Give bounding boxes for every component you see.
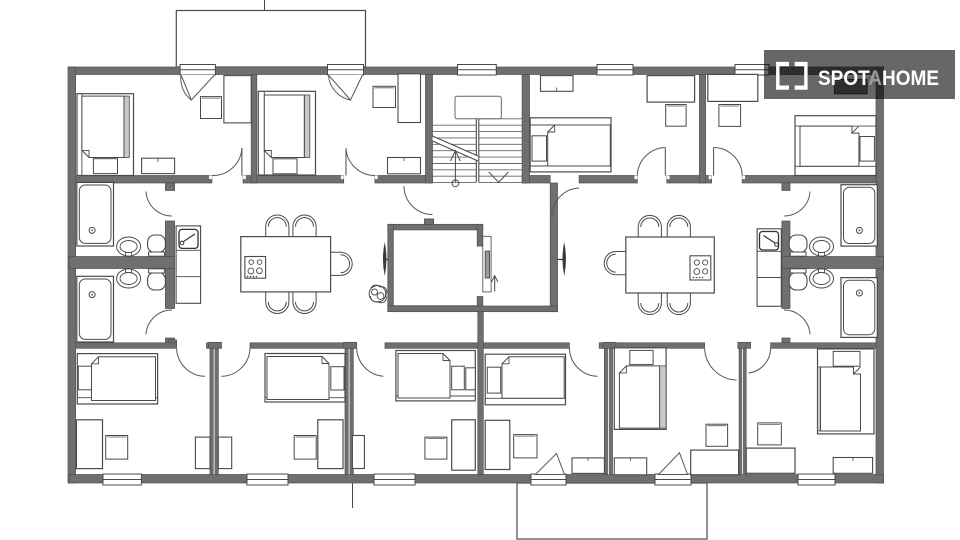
svg-text:SPOTAHOME: SPOTAHOME — [818, 67, 939, 90]
